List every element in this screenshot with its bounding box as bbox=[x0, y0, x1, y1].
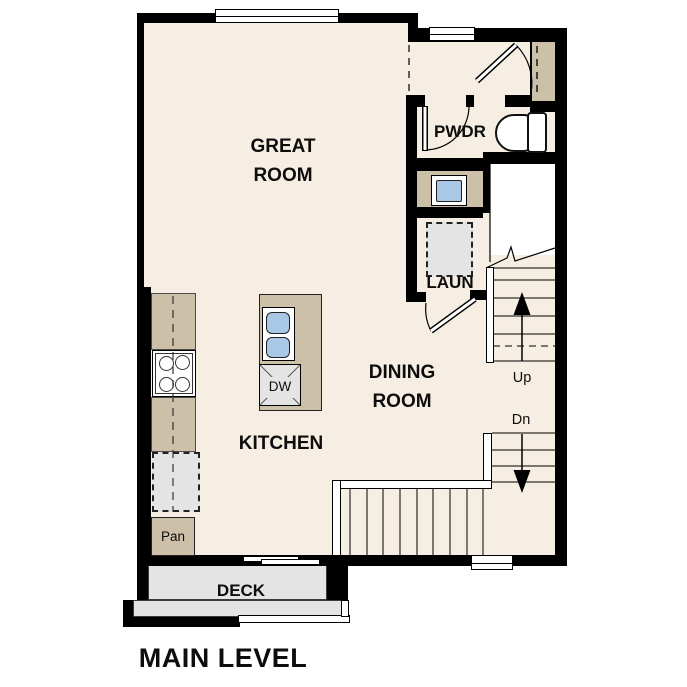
wall-powder-top-left bbox=[406, 95, 425, 107]
wall-powder-bottom bbox=[406, 158, 483, 171]
toilet-tank bbox=[527, 112, 547, 153]
wall-powder-left bbox=[406, 95, 417, 302]
stove-burner bbox=[175, 377, 190, 392]
wall-deck-left bbox=[137, 556, 148, 600]
wall-powder-door-jamb bbox=[466, 95, 474, 107]
deck-railing-bottom bbox=[238, 615, 350, 623]
washer bbox=[426, 222, 473, 277]
great-room-label: GREAT ROOM bbox=[250, 132, 315, 191]
stove-burner bbox=[175, 355, 190, 370]
railing-lower-run-vertical bbox=[332, 480, 341, 556]
deck-railing-right bbox=[341, 600, 349, 617]
stove-burner bbox=[159, 356, 174, 371]
deck-label: DECK bbox=[217, 578, 265, 604]
floor-title: MAIN LEVEL bbox=[139, 638, 308, 680]
kitchen-counter-lower bbox=[151, 397, 196, 452]
window-mullion bbox=[430, 34, 474, 35]
stove-burner bbox=[159, 377, 174, 392]
window-mullion bbox=[216, 16, 338, 17]
window-mullion bbox=[472, 563, 512, 564]
dishwasher-label: DW bbox=[267, 377, 294, 398]
railing-up-stairs bbox=[486, 267, 494, 363]
stairs-down-label: Dn bbox=[512, 409, 531, 431]
range-stove bbox=[152, 350, 196, 397]
wall-left-kitchen bbox=[137, 287, 151, 556]
wall-laundry-bottom-left bbox=[406, 292, 426, 302]
wall-right-exterior bbox=[555, 28, 567, 566]
stairs-up-label: Up bbox=[513, 367, 532, 389]
floor-plan-canvas: GREAT ROOM KITCHEN DINING ROOM PWDR LAUN… bbox=[0, 0, 687, 687]
window-stair-bottom bbox=[471, 555, 513, 570]
entry-closet bbox=[532, 42, 555, 101]
wall-sink-laundry-divider bbox=[406, 207, 483, 218]
window-entry-top bbox=[429, 27, 475, 41]
wall-left-upper bbox=[137, 13, 144, 293]
window-great-room-top bbox=[215, 9, 339, 23]
wall-deck-right-block bbox=[327, 556, 348, 600]
railing-lower-run-horizontal bbox=[332, 480, 492, 489]
kitchen-label: KITCHEN bbox=[239, 429, 323, 458]
wall-stairwell-top bbox=[483, 152, 555, 164]
wall-deck-bottom-bar bbox=[123, 617, 240, 627]
stairwell-void-open-below bbox=[490, 164, 555, 255]
dining-room-label: DINING ROOM bbox=[369, 358, 436, 417]
island-sink-basin-lower bbox=[266, 337, 290, 358]
refrigerator bbox=[152, 452, 200, 512]
hall-sink-basin bbox=[436, 180, 462, 202]
pantry-label: Pan bbox=[161, 527, 185, 548]
sliding-door-panel-inner bbox=[261, 559, 320, 565]
powder-room-label: PWDR bbox=[434, 119, 486, 145]
island-sink-basin-upper bbox=[266, 312, 290, 334]
wall-closet-bottom bbox=[530, 101, 555, 112]
laundry-label: LAUN bbox=[426, 270, 473, 296]
kitchen-counter-upper bbox=[151, 293, 196, 350]
